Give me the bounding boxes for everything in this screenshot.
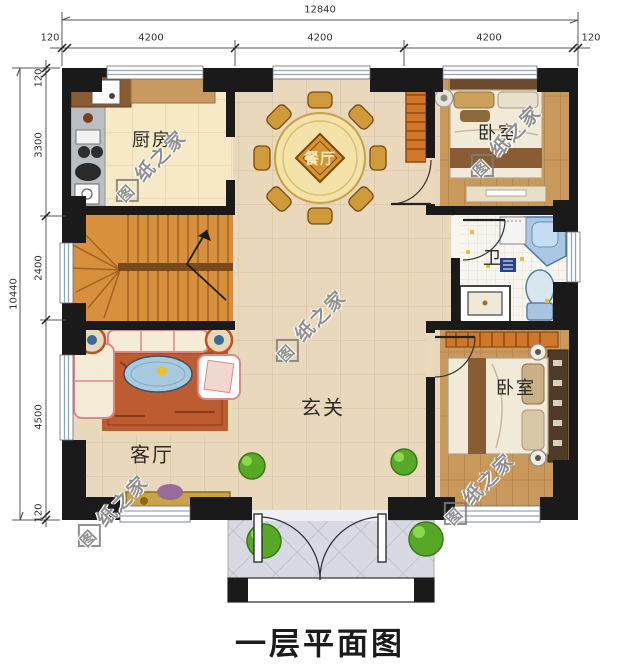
- dim-top-seg-4: 120: [581, 33, 600, 44]
- console-flowers: [157, 484, 183, 500]
- sofa: [108, 330, 208, 352]
- window-stairs: [60, 243, 73, 303]
- window-bedroom-top: [443, 66, 537, 79]
- room-label-dining: 餐厅: [304, 148, 336, 169]
- dim-left-total: 10440: [9, 278, 20, 310]
- dim-top-seg-3: 4200: [476, 33, 501, 44]
- watermark-logo-icon: 图: [116, 179, 139, 202]
- staircase: [71, 215, 233, 321]
- porch-steps: [228, 578, 434, 602]
- room-label-bathroom: 卫: [483, 244, 503, 270]
- dim-left-seg-0: 120: [34, 68, 45, 87]
- dim-left-seg-1: 3300: [34, 132, 45, 157]
- window-bathroom: [567, 232, 580, 282]
- watermark-logo-icon: 图: [471, 154, 494, 177]
- dim-top-seg-1: 4200: [138, 33, 163, 44]
- kitchen-sink: [75, 163, 101, 181]
- dim-top-seg-2: 4200: [307, 33, 332, 44]
- watermark-logo-icon: 图: [276, 339, 299, 362]
- floor-plan-drawing: [0, 0, 640, 670]
- dim-left-seg-2: 2400: [34, 255, 45, 280]
- page-title: 一层平面图: [235, 619, 405, 664]
- window-living-left: [60, 355, 73, 440]
- watermark-logo-icon: 图: [444, 502, 467, 525]
- dining-cabinet: [406, 86, 426, 162]
- dim-top-seg-0: 120: [40, 33, 59, 44]
- floor-plan-canvas: 12840 120 4200 4200 4200 120 10440 120 3…: [0, 0, 640, 670]
- dim-top-total: 12840: [304, 5, 336, 16]
- window-kitchen: [107, 66, 203, 79]
- room-label-living: 客厅: [130, 439, 174, 468]
- room-label-bedroom-bottom: 卧室: [496, 374, 536, 400]
- toilet: [526, 270, 554, 306]
- watermark-logo-icon: 图: [78, 524, 101, 547]
- dim-left-seg-3: 4500: [34, 404, 45, 429]
- stair-rail: [118, 263, 233, 271]
- dim-left-seg-4: 120: [34, 503, 45, 522]
- window-dining: [273, 66, 370, 79]
- room-label-hallway: 玄关: [301, 392, 345, 421]
